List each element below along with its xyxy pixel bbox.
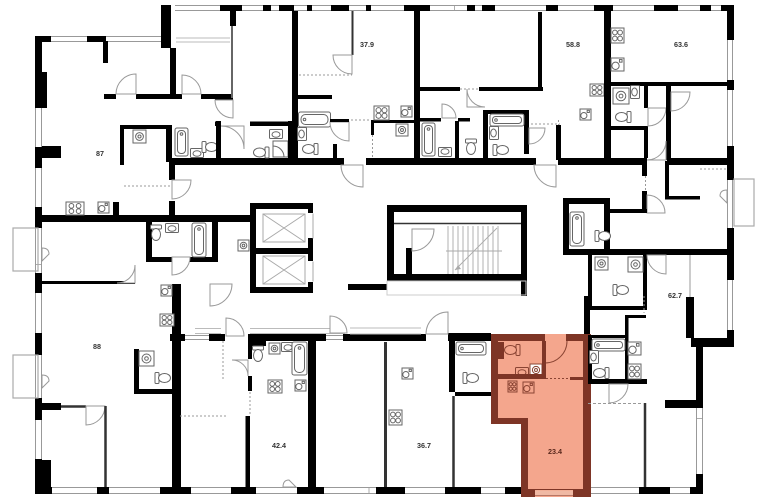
- svg-text:62.7: 62.7: [668, 291, 682, 300]
- svg-text:63.6: 63.6: [674, 40, 688, 49]
- svg-text:36.7: 36.7: [417, 441, 431, 450]
- svg-text:88: 88: [93, 342, 101, 351]
- svg-text:58.8: 58.8: [566, 40, 580, 49]
- svg-text:42.4: 42.4: [272, 441, 286, 450]
- svg-text:23.4: 23.4: [548, 447, 562, 456]
- svg-text:37.9: 37.9: [360, 40, 374, 49]
- svg-text:87: 87: [96, 149, 104, 158]
